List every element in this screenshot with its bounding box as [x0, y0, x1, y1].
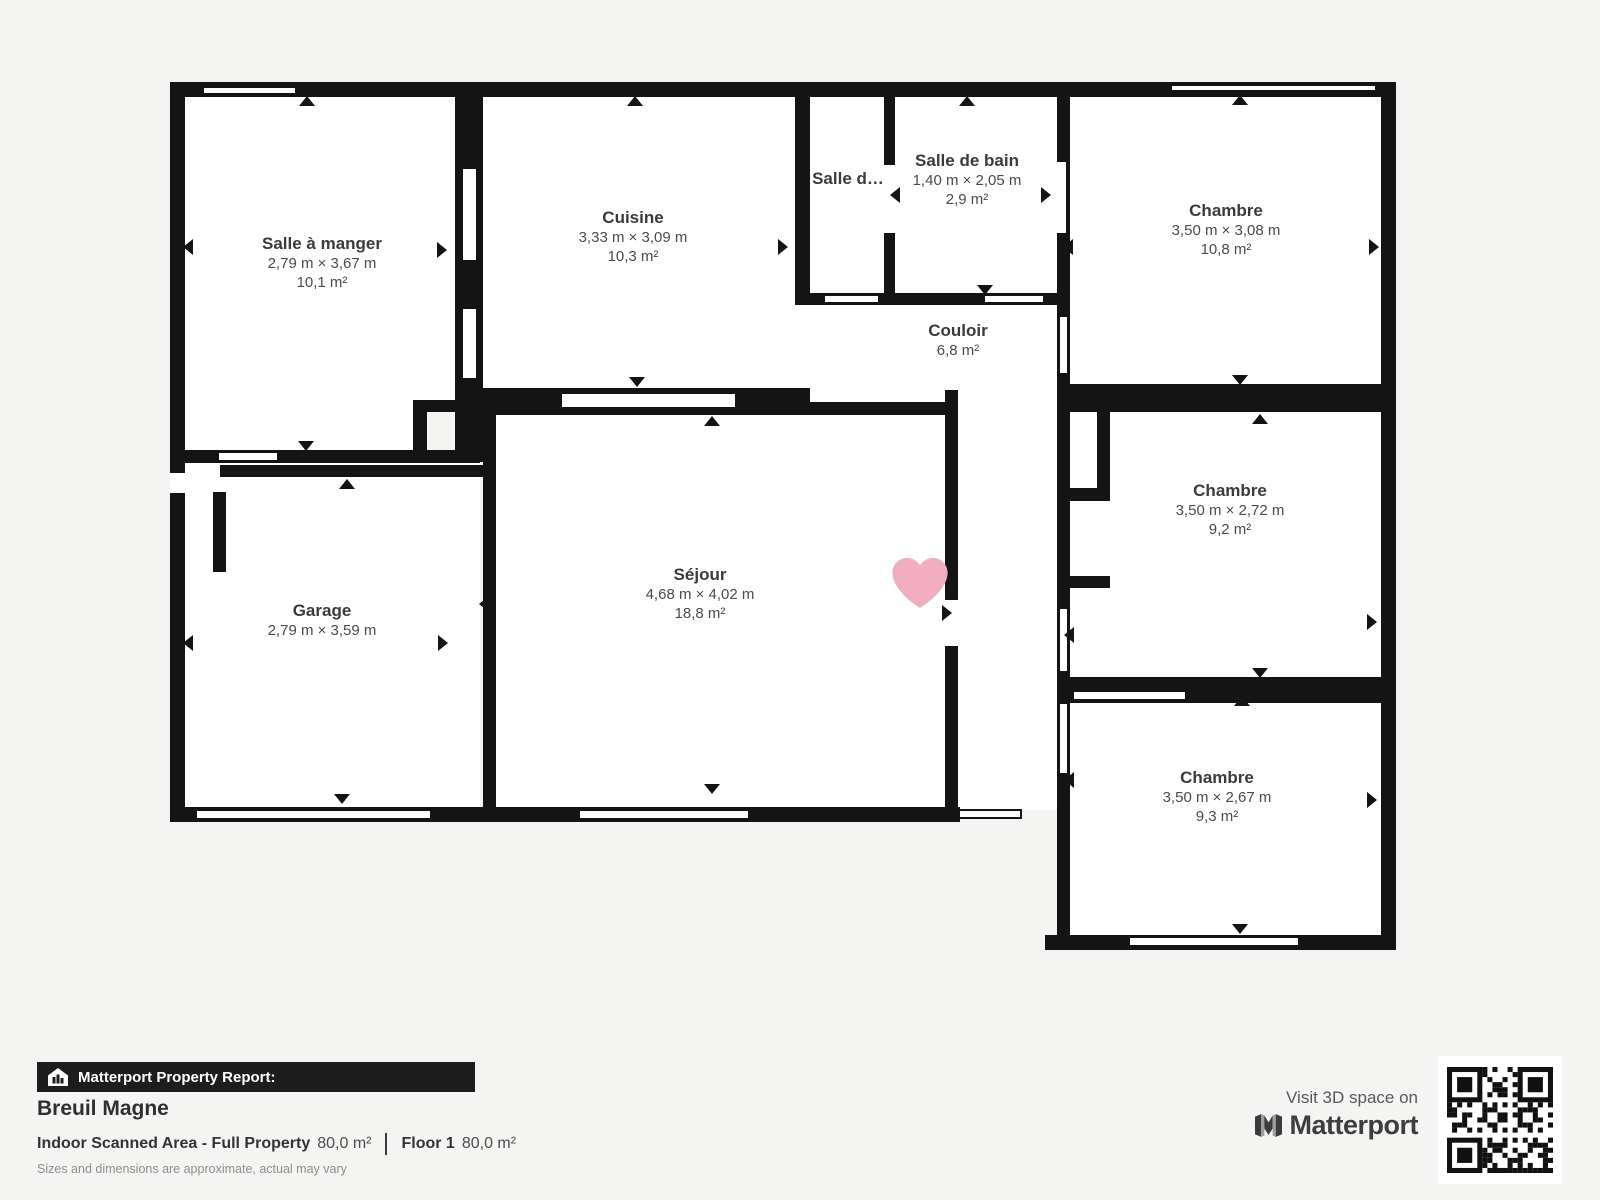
door-arrow-icon	[778, 239, 788, 255]
door-arrow-icon	[1041, 187, 1051, 203]
area-value: 80,0 m²	[317, 1135, 371, 1153]
room-floor	[1070, 390, 1381, 938]
room-floor	[483, 390, 958, 810]
window	[1058, 315, 1069, 375]
window	[1072, 690, 1187, 701]
wall	[170, 82, 185, 473]
floor-label: Floor 1	[401, 1135, 454, 1153]
window	[202, 86, 297, 95]
door-opening	[170, 473, 185, 493]
door-arrow-icon	[183, 239, 193, 255]
report-banner-label: Matterport Property Report:	[78, 1069, 276, 1086]
door-arrow-icon	[479, 596, 489, 612]
door-arrow-icon	[438, 635, 448, 651]
door-opening	[1057, 162, 1066, 233]
qr-code	[1438, 1056, 1562, 1184]
disclaimer-text: Sizes and dimensions are approximate, ac…	[37, 1162, 347, 1176]
wall	[455, 97, 483, 462]
window	[578, 809, 750, 820]
heart-icon	[892, 558, 948, 608]
window	[560, 392, 737, 409]
window	[1128, 936, 1300, 947]
window	[1058, 702, 1069, 775]
door-arrow-icon	[1064, 772, 1074, 788]
door-arrow-icon	[1252, 668, 1268, 678]
wall	[795, 97, 810, 305]
door-arrow-icon	[1367, 792, 1377, 808]
door-arrow-icon	[334, 794, 350, 804]
door-arrow-icon	[298, 441, 314, 451]
wall	[483, 404, 496, 822]
wall	[1381, 82, 1396, 950]
floor-plan-page: Salle à manger2,79 m × 3,67 m10,1 m²Cuis…	[0, 0, 1600, 1200]
window	[461, 307, 478, 380]
door-arrow-icon	[1232, 924, 1248, 934]
area-label: Indoor Scanned Area - Full Property	[37, 1135, 310, 1153]
window	[958, 809, 1022, 819]
report-info-row: Indoor Scanned Area - Full Property 80,0…	[37, 1133, 516, 1155]
door-arrow-icon	[704, 784, 720, 794]
door-arrow-icon	[1063, 239, 1073, 255]
property-name: Breuil Magne	[37, 1097, 169, 1121]
door-arrow-icon	[437, 242, 447, 258]
floor-value: 80,0 m²	[462, 1135, 516, 1153]
door-arrow-icon	[890, 187, 900, 203]
door-arrow-icon	[1232, 95, 1248, 105]
door-arrow-icon	[1064, 627, 1074, 643]
door-arrow-icon	[299, 96, 315, 106]
matterport-logo-icon	[1255, 1112, 1282, 1139]
door-arrow-icon	[1367, 614, 1377, 630]
wall	[220, 465, 483, 477]
info-divider	[385, 1133, 387, 1155]
matterport-wordmark: Matterport	[1290, 1110, 1419, 1141]
door-arrow-icon	[977, 285, 993, 295]
door-arrow-icon	[629, 377, 645, 387]
door-arrow-icon	[627, 96, 643, 106]
door-arrow-icon	[183, 635, 193, 651]
floor-plan: Salle à manger2,79 m × 3,67 m10,1 m²Cuis…	[0, 0, 1600, 1000]
house-chart-icon	[48, 1068, 68, 1086]
wall	[1057, 576, 1110, 588]
wall	[1057, 384, 1396, 412]
report-banner: Matterport Property Report:	[37, 1062, 475, 1092]
door-arrow-icon	[339, 479, 355, 489]
window	[461, 167, 478, 262]
door-arrow-icon	[1234, 696, 1250, 706]
window	[217, 451, 279, 462]
door-arrow-icon	[1369, 239, 1379, 255]
wall	[1057, 488, 1110, 501]
wall	[1097, 410, 1110, 495]
door-arrow-icon	[1232, 375, 1248, 385]
wall	[170, 493, 185, 822]
door-arrow-icon	[704, 416, 720, 426]
matterport-brand: Matterport	[1255, 1110, 1419, 1141]
wall	[213, 492, 226, 572]
window	[823, 294, 880, 304]
door-arrow-icon	[959, 96, 975, 106]
window	[195, 809, 432, 820]
room-floor	[958, 305, 1070, 810]
door-arrow-icon	[1252, 414, 1268, 424]
visit-3d-text: Visit 3D space on	[1286, 1088, 1418, 1108]
window	[1170, 84, 1377, 92]
window	[983, 294, 1045, 304]
